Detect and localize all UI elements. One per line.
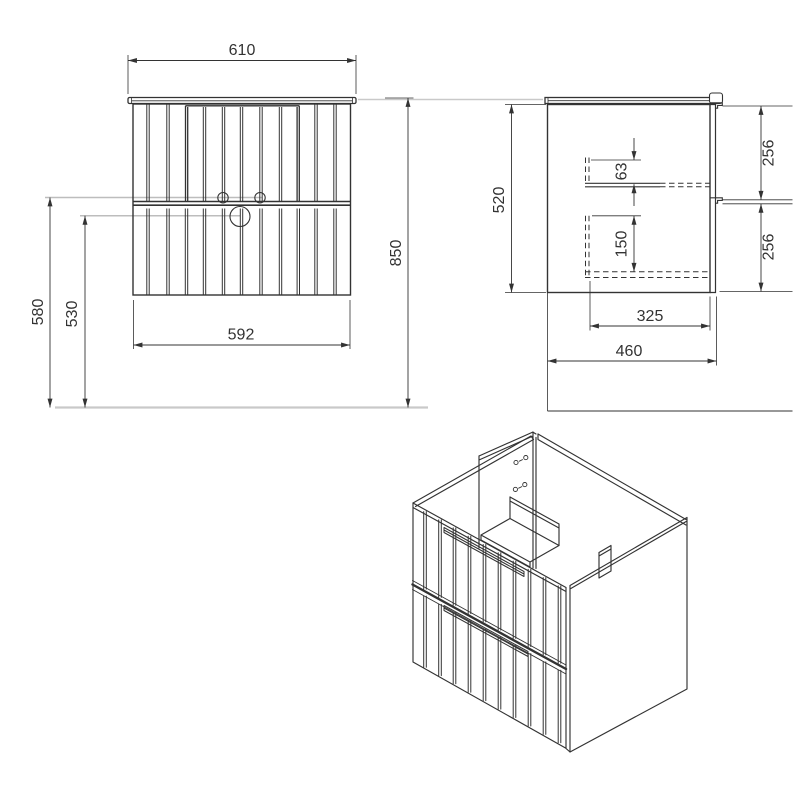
dim-side-front-top: 256 bbox=[761, 140, 778, 167]
dim-side-gap-top: 63 bbox=[614, 163, 631, 181]
side-view: 63 150 520 256 256 325 460 bbox=[491, 93, 793, 411]
ext-256 bbox=[720, 106, 793, 292]
dim-side-front-bottom: 256 bbox=[761, 234, 778, 261]
isometric-view bbox=[413, 432, 688, 752]
iso-slats-lower bbox=[424, 596, 561, 743]
cabinet-front-outline bbox=[133, 104, 351, 295]
front-view: 610 592 850 580 530 bbox=[30, 42, 543, 408]
slat-grooves-upper-outer bbox=[147, 105, 336, 202]
iso-keyholes bbox=[513, 456, 528, 492]
iso-right-panel bbox=[570, 518, 687, 753]
dim-front-width-bottom: 592 bbox=[228, 327, 255, 344]
dim-front-height-drain: 530 bbox=[64, 301, 81, 328]
drawer-internals-dashed bbox=[585, 158, 710, 278]
drawer-bottom-solid bbox=[585, 183, 660, 187]
drawer-front-strip bbox=[710, 105, 716, 293]
dim-front-height-total: 850 bbox=[388, 240, 405, 267]
drawer-divider bbox=[133, 202, 351, 206]
dim-front-height-divider: 580 bbox=[30, 299, 47, 326]
iso-back-top-rail bbox=[538, 434, 686, 525]
dim-side-gap-bottom: 150 bbox=[614, 231, 631, 258]
drawing-canvas: 610 592 850 580 530 6 bbox=[0, 0, 800, 800]
slat-grooves-lower bbox=[147, 209, 336, 295]
iso-shelf-lip bbox=[510, 497, 559, 546]
iso-bracket bbox=[599, 546, 611, 579]
iso-left-wall-top bbox=[413, 436, 534, 507]
slat-grooves-upper-inner bbox=[203, 107, 281, 202]
dim-side-depth-inner: 325 bbox=[637, 308, 664, 325]
countertop-nose bbox=[710, 93, 723, 104]
dim-side-depth-total: 460 bbox=[616, 343, 643, 360]
dim-side-height-body: 520 bbox=[491, 187, 508, 214]
iso-slats-upper bbox=[424, 512, 561, 664]
technical-drawing: 610 592 850 580 530 6 bbox=[0, 0, 800, 800]
cabinet-side-outline bbox=[548, 105, 711, 293]
dim-front-width-top: 610 bbox=[229, 42, 256, 59]
handle-bottom-profile bbox=[710, 198, 722, 203]
